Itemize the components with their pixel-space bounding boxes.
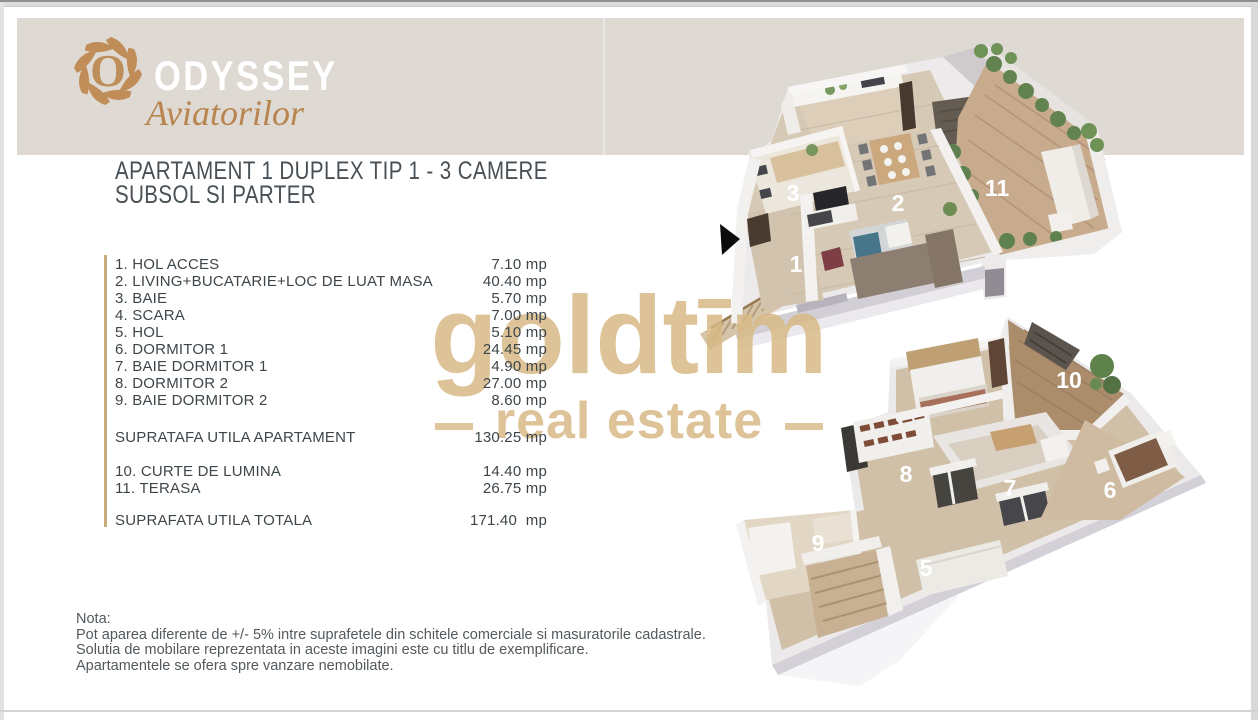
svg-text:O: O (90, 45, 126, 96)
